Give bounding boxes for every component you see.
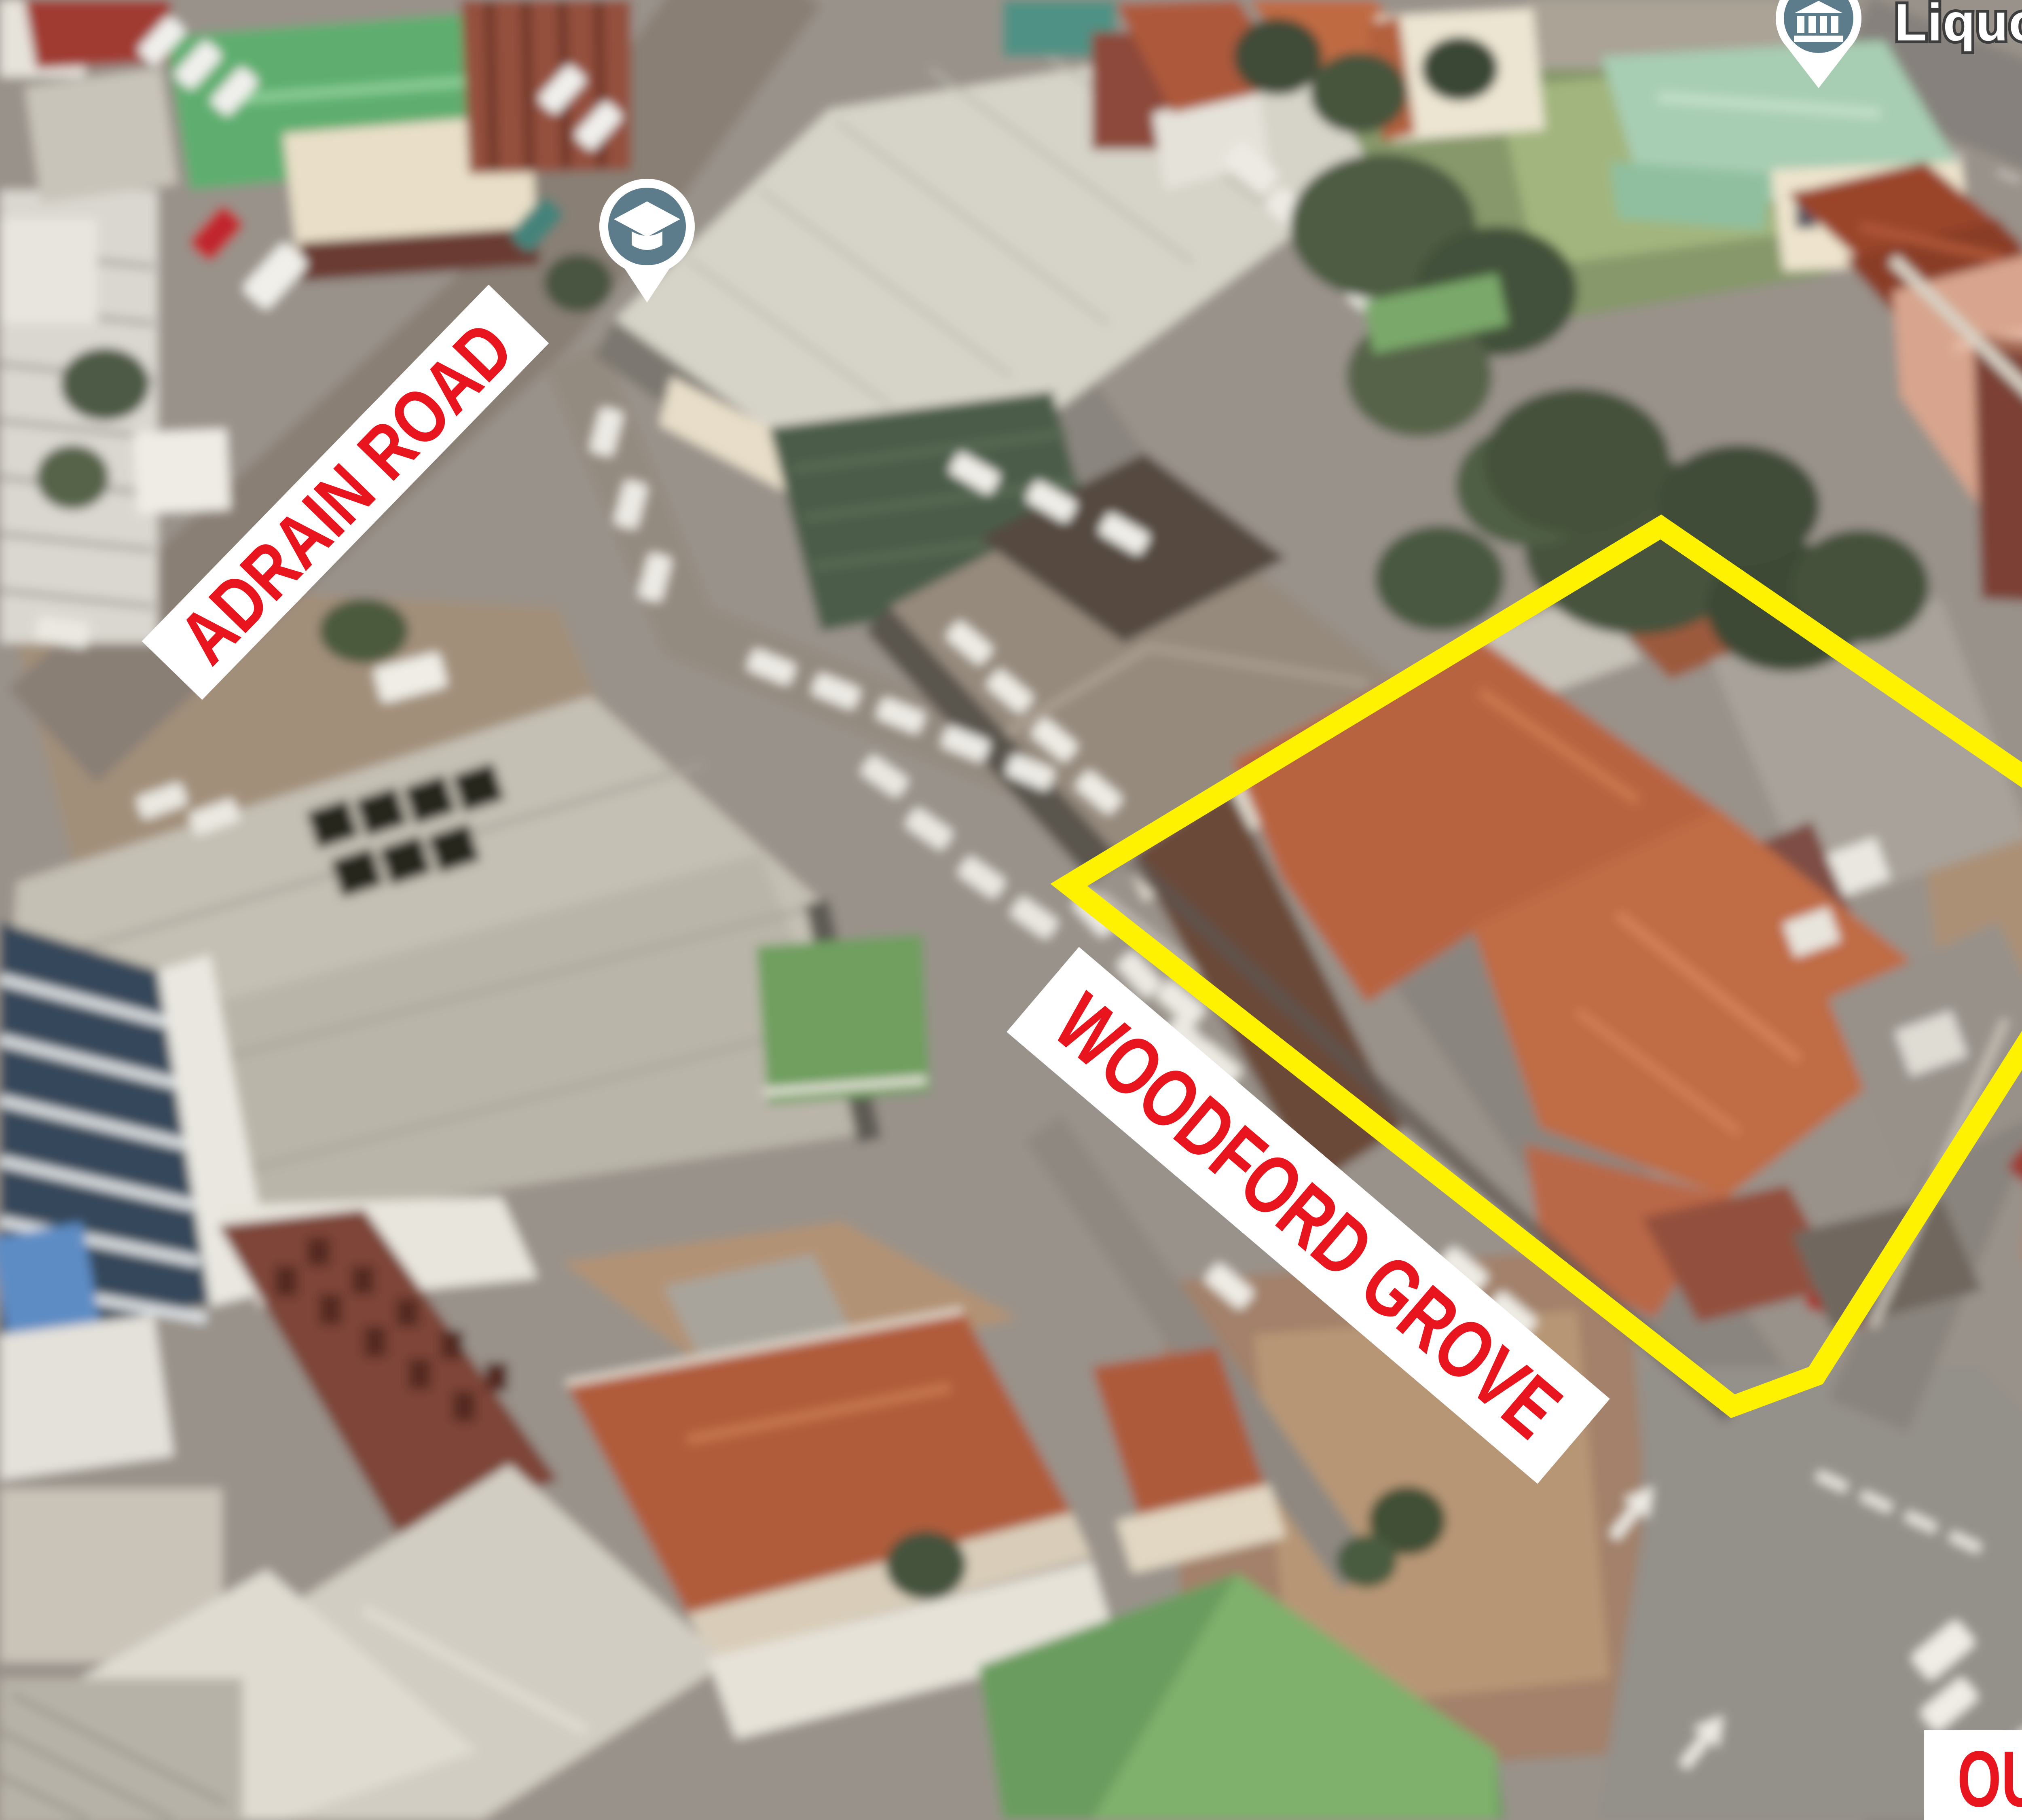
svg-text:Liquor Control: Liquor Control <box>1895 0 2022 52</box>
svg-text:OUTLINE TO BE USED AS A GUIDEL: OUTLINE TO BE USED AS A GUIDELINE ONLY <box>1957 1735 2022 1820</box>
